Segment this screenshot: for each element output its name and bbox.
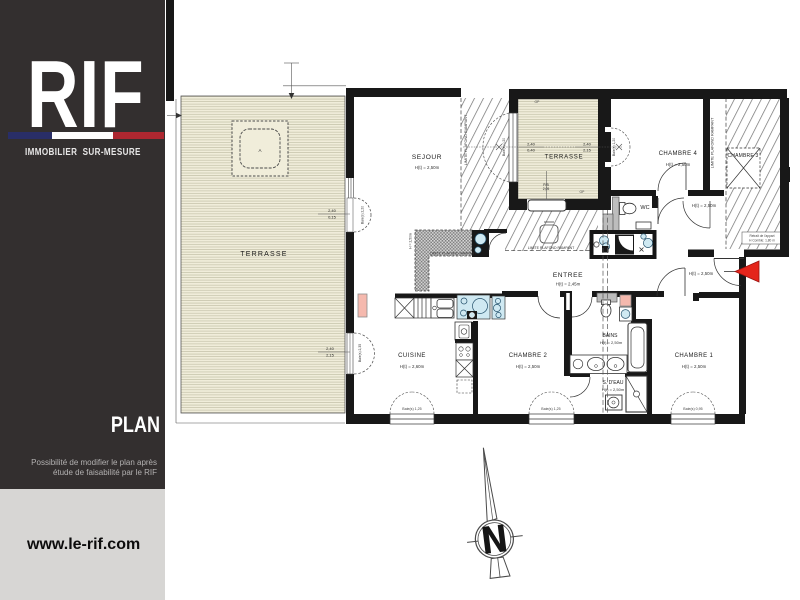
svg-text:2,40: 2,40 xyxy=(328,208,337,213)
svg-text:2,15: 2,15 xyxy=(583,148,592,153)
svg-text:Baie(s) 1,25: Baie(s) 1,25 xyxy=(402,407,421,411)
svg-text:TERRASSE: TERRASSE xyxy=(545,155,584,161)
svg-text:CHAMBRE 4: CHAMBRE 4 xyxy=(659,151,698,157)
svg-text:0,40: 0,40 xyxy=(527,148,536,153)
svg-text:LIMITE PLAFOND RAMPANT: LIMITE PLAFOND RAMPANT xyxy=(464,114,468,165)
svg-text:2,05: 2,05 xyxy=(543,187,550,191)
svg-text:CHAMBRE 3: CHAMBRE 3 xyxy=(728,153,759,159)
svg-text:H(t) = 2,50m: H(t) = 2,50m xyxy=(689,271,714,276)
svg-text:Retrait de l'appart: Retrait de l'appart xyxy=(749,234,774,238)
svg-text:GP: GP xyxy=(535,100,541,104)
svg-text:LIMITE PLAFOND RAMPANT: LIMITE PLAFOND RAMPANT xyxy=(711,117,715,168)
svg-text:BAINS: BAINS xyxy=(602,333,618,339)
svg-text:S. D'EAU: S. D'EAU xyxy=(603,380,624,386)
svg-text:H(t) = 2,50m: H(t) = 2,50m xyxy=(516,364,541,369)
svg-text:H(t) = 2,50m: H(t) = 2,50m xyxy=(602,387,625,392)
svg-text:2,40: 2,40 xyxy=(527,142,536,147)
svg-text:H(t) = 2,50m: H(t) = 2,50m xyxy=(692,203,717,208)
svg-text:CHAMBRE 2: CHAMBRE 2 xyxy=(509,353,548,359)
svg-text:2,40: 2,40 xyxy=(583,142,592,147)
svg-text:CHAMBRE 1: CHAMBRE 1 xyxy=(675,353,714,359)
svg-text:H(t) = 2,50m: H(t) = 2,50m xyxy=(682,364,707,369)
svg-text:Baie(s) 1,25: Baie(s) 1,25 xyxy=(541,407,560,411)
svg-text:LIMITE PLAFOND RAMPANT: LIMITE PLAFOND RAMPANT xyxy=(430,252,477,256)
svg-text:H = 2,50m: H = 2,50m xyxy=(409,233,413,249)
svg-text:0,15: 0,15 xyxy=(328,215,337,220)
svg-text:GP: GP xyxy=(580,190,586,194)
svg-text:H(t) = 2,50m: H(t) = 2,50m xyxy=(666,162,691,167)
svg-text:SEJOUR: SEJOUR xyxy=(412,154,442,161)
svg-text:WC: WC xyxy=(640,205,649,211)
svg-text:ENTREE: ENTREE xyxy=(553,272,583,279)
svg-text:H(t) = 2,45m: H(t) = 2,45m xyxy=(556,282,581,287)
svg-text:Baie(s) 2,20: Baie(s) 2,20 xyxy=(361,206,365,224)
svg-text:H(t) = 2,60m: H(t) = 2,60m xyxy=(400,364,425,369)
svg-text:2,15: 2,15 xyxy=(326,353,335,358)
svg-text:TERRASSE: TERRASSE xyxy=(240,251,287,258)
svg-text:H(t) = 2,50m: H(t) = 2,50m xyxy=(600,340,623,345)
svg-text:Baie(s) 0,95: Baie(s) 0,95 xyxy=(683,407,702,411)
svg-text:H Comble: 1,80 m: H Comble: 1,80 m xyxy=(749,239,775,243)
svg-text:Baie(s) 2,35: Baie(s) 2,35 xyxy=(358,344,362,362)
svg-text:CUISINE: CUISINE xyxy=(398,353,426,359)
svg-text:A: A xyxy=(258,148,261,153)
svg-text:LIMITE PLAFOND RAMPANT: LIMITE PLAFOND RAMPANT xyxy=(528,246,575,250)
svg-text:H(t) = 2,50m: H(t) = 2,50m xyxy=(415,165,440,170)
svg-text:2,40: 2,40 xyxy=(326,346,335,351)
